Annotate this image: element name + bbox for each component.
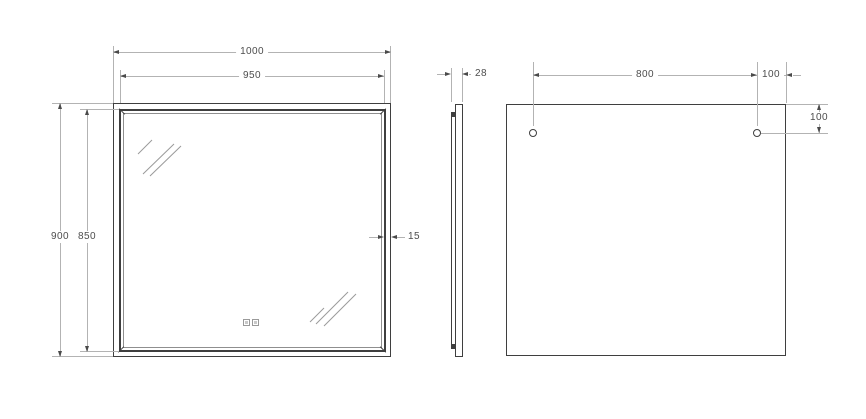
arrowhead-right <box>378 235 384 239</box>
dim-900-label: 900 <box>47 231 73 243</box>
dim-15-tail-right <box>397 237 405 238</box>
dim-800-label: 800 <box>632 69 658 81</box>
touch-control-dot <box>245 321 248 324</box>
touch-control-dot <box>254 321 257 324</box>
arrowhead-down <box>85 346 89 352</box>
arrowhead-right <box>445 72 451 76</box>
dim-900-line <box>60 103 61 357</box>
back-panel <box>506 104 786 356</box>
arrowhead-left <box>462 72 468 76</box>
extension-line <box>113 46 114 103</box>
extension-line <box>786 62 787 103</box>
arrowhead-left <box>533 73 539 77</box>
arrowhead-up <box>58 103 62 109</box>
dim-100-top-label: 100 <box>806 112 832 124</box>
side-front-panel <box>455 104 463 357</box>
dim-28-tail-left <box>437 74 445 75</box>
dim-950-label: 950 <box>239 70 265 82</box>
dim-15-label: 15 <box>406 231 422 243</box>
arrowhead-right <box>378 74 384 78</box>
shine-glint-icon-bottom-right <box>308 282 366 328</box>
extension-line <box>533 62 534 126</box>
technical-drawing-canvas: 1000 950 900 850 15 <box>0 0 866 419</box>
extension-line <box>384 70 385 103</box>
touch-control-icon-left <box>243 319 250 326</box>
extension-line <box>761 133 828 134</box>
dim-15-tail-left <box>369 237 378 238</box>
arrowhead-down <box>58 351 62 357</box>
arrowhead-left <box>113 50 119 54</box>
dim-100-tail-right <box>793 75 801 76</box>
extension-line <box>786 104 828 105</box>
extension-line <box>390 46 391 103</box>
dim-100-side-label: 100 <box>758 69 784 81</box>
arrowhead-down <box>817 127 821 133</box>
arrowhead-left <box>786 73 792 77</box>
touch-control-icon-right <box>252 319 259 326</box>
arrowhead-up <box>85 109 89 115</box>
mounting-hole-left <box>529 129 537 137</box>
dim-28-label: 28 <box>471 68 491 80</box>
arrowhead-right <box>385 50 391 54</box>
mounting-hole-right <box>753 129 761 137</box>
arrowhead-up <box>817 104 821 110</box>
arrowhead-left <box>120 74 126 78</box>
shine-glint-icon-top-left <box>136 132 192 178</box>
dim-1000-label: 1000 <box>236 46 268 58</box>
dim-850-label: 850 <box>74 231 100 243</box>
extension-line <box>451 68 452 102</box>
